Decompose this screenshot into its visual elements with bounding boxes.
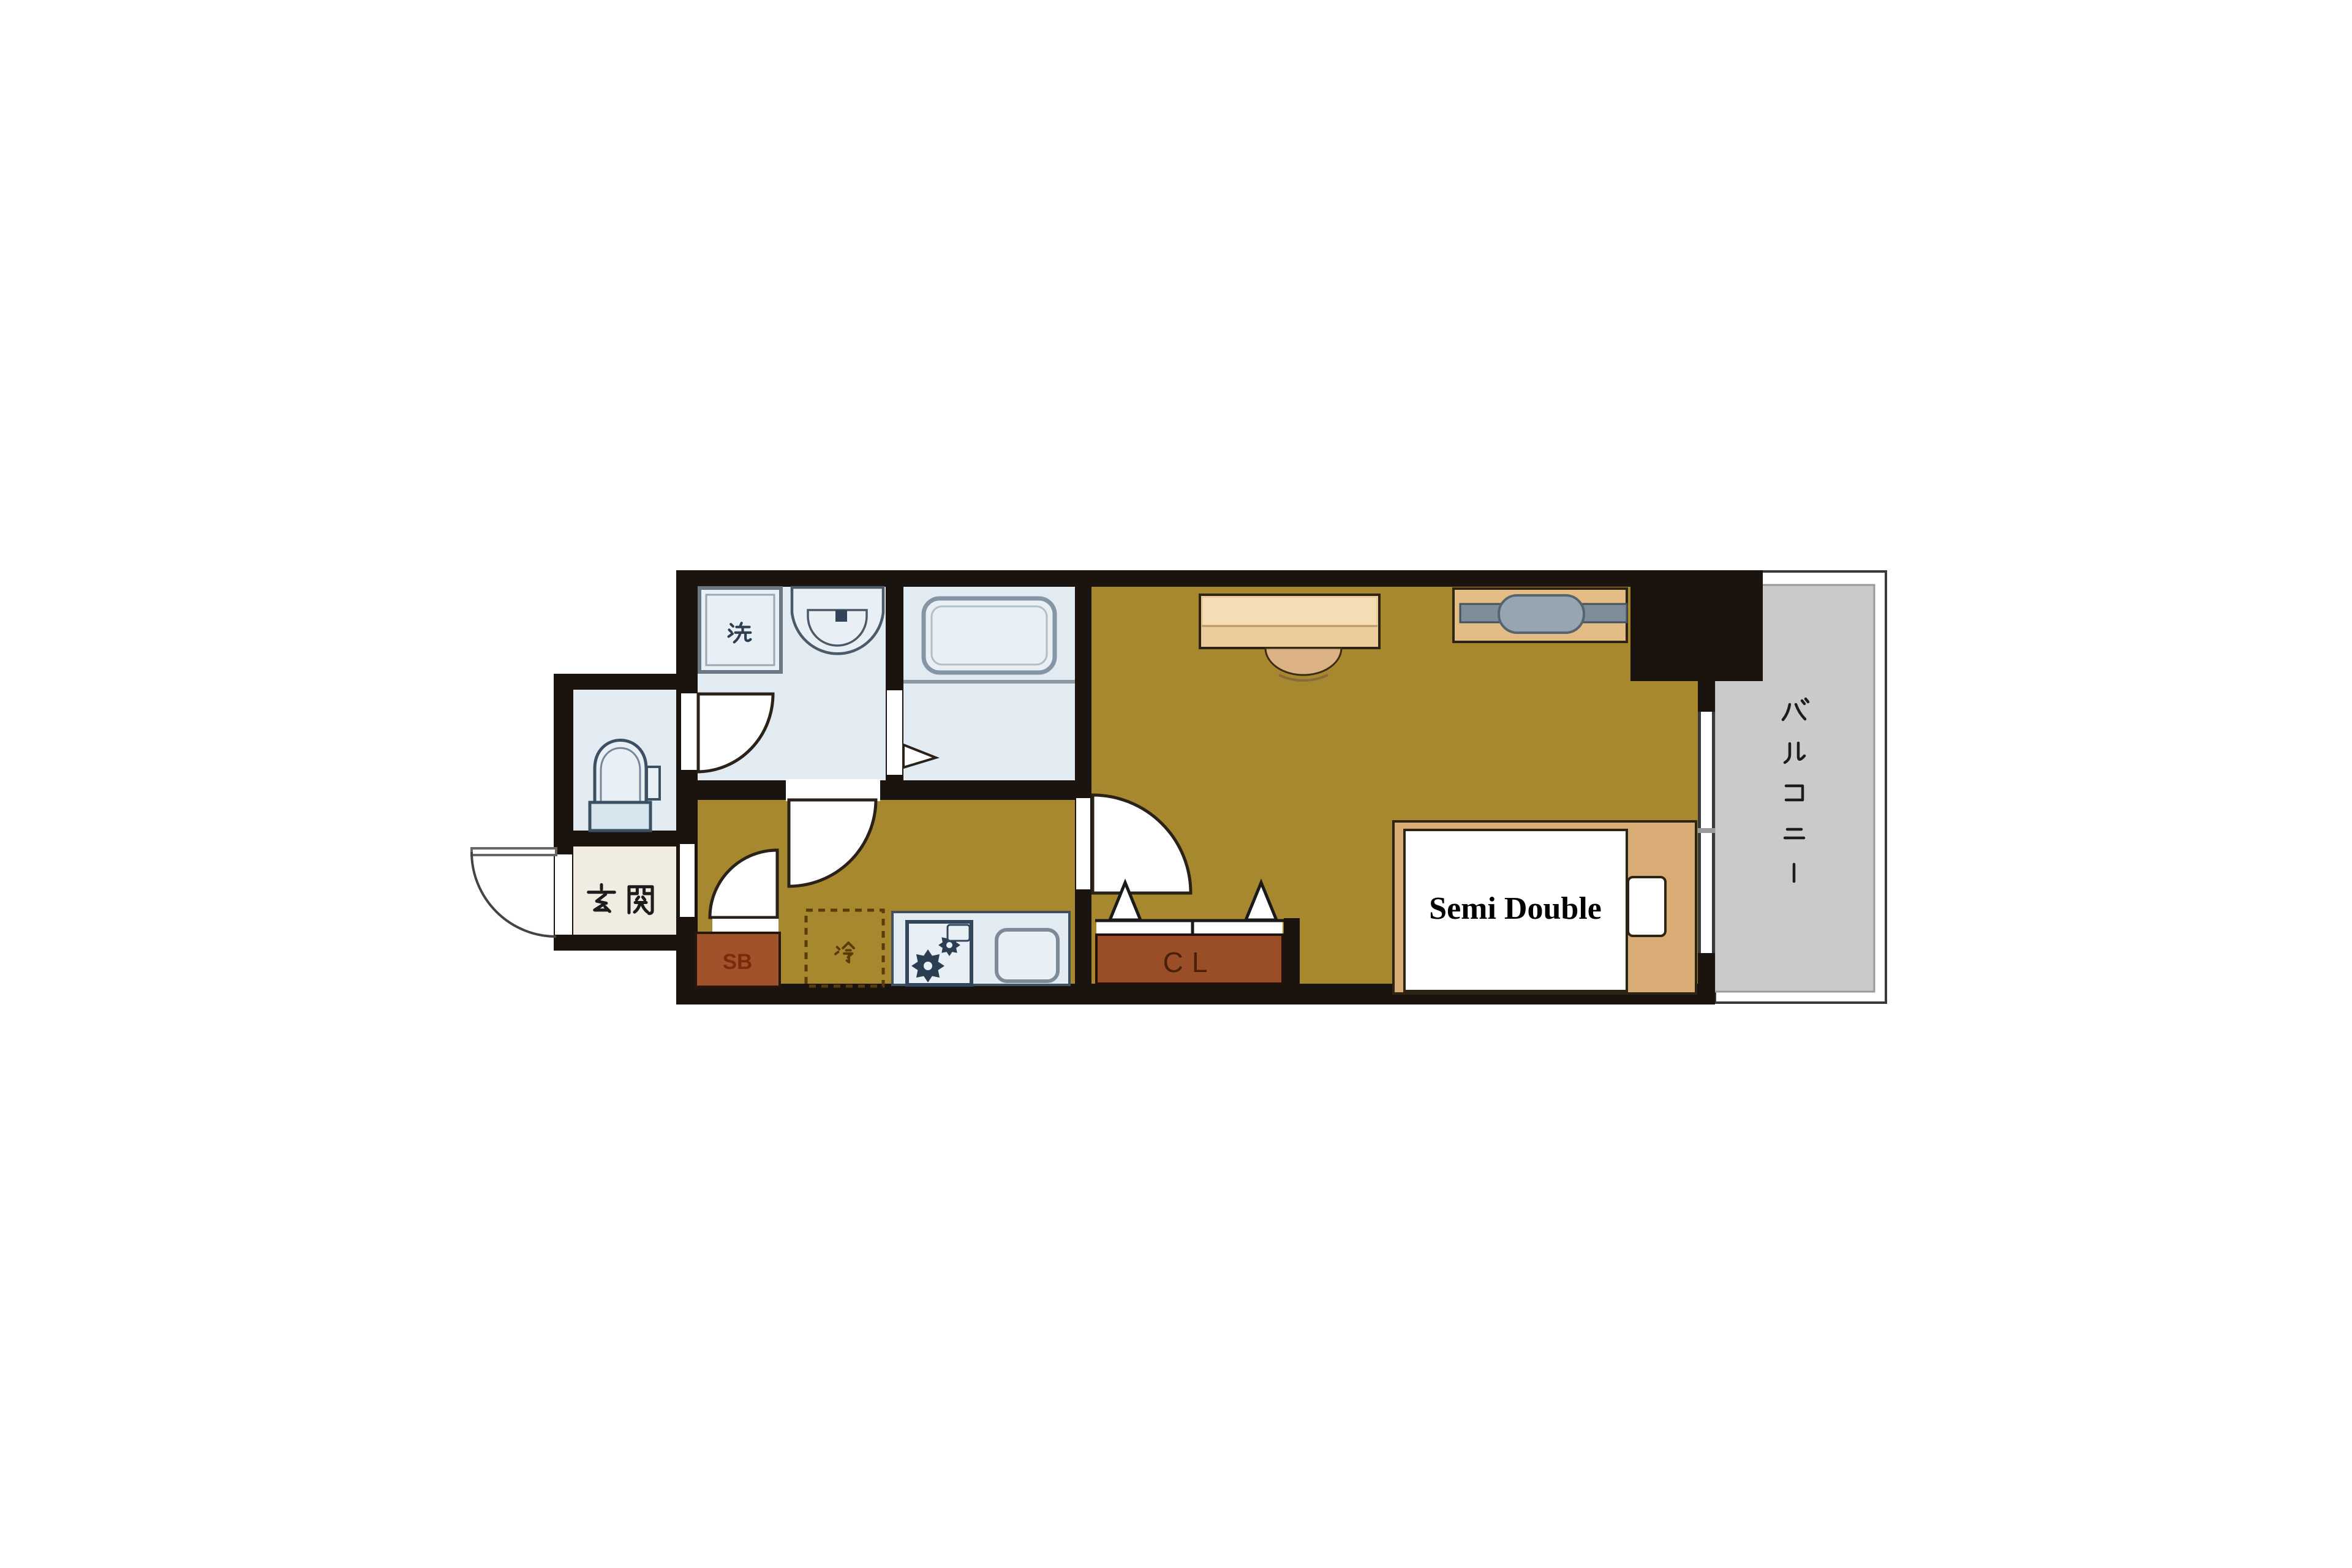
svg-text:Semi Double: Semi Double — [1429, 891, 1602, 926]
svg-text:CL: CL — [1163, 946, 1216, 978]
svg-text:SB: SB — [723, 950, 753, 974]
